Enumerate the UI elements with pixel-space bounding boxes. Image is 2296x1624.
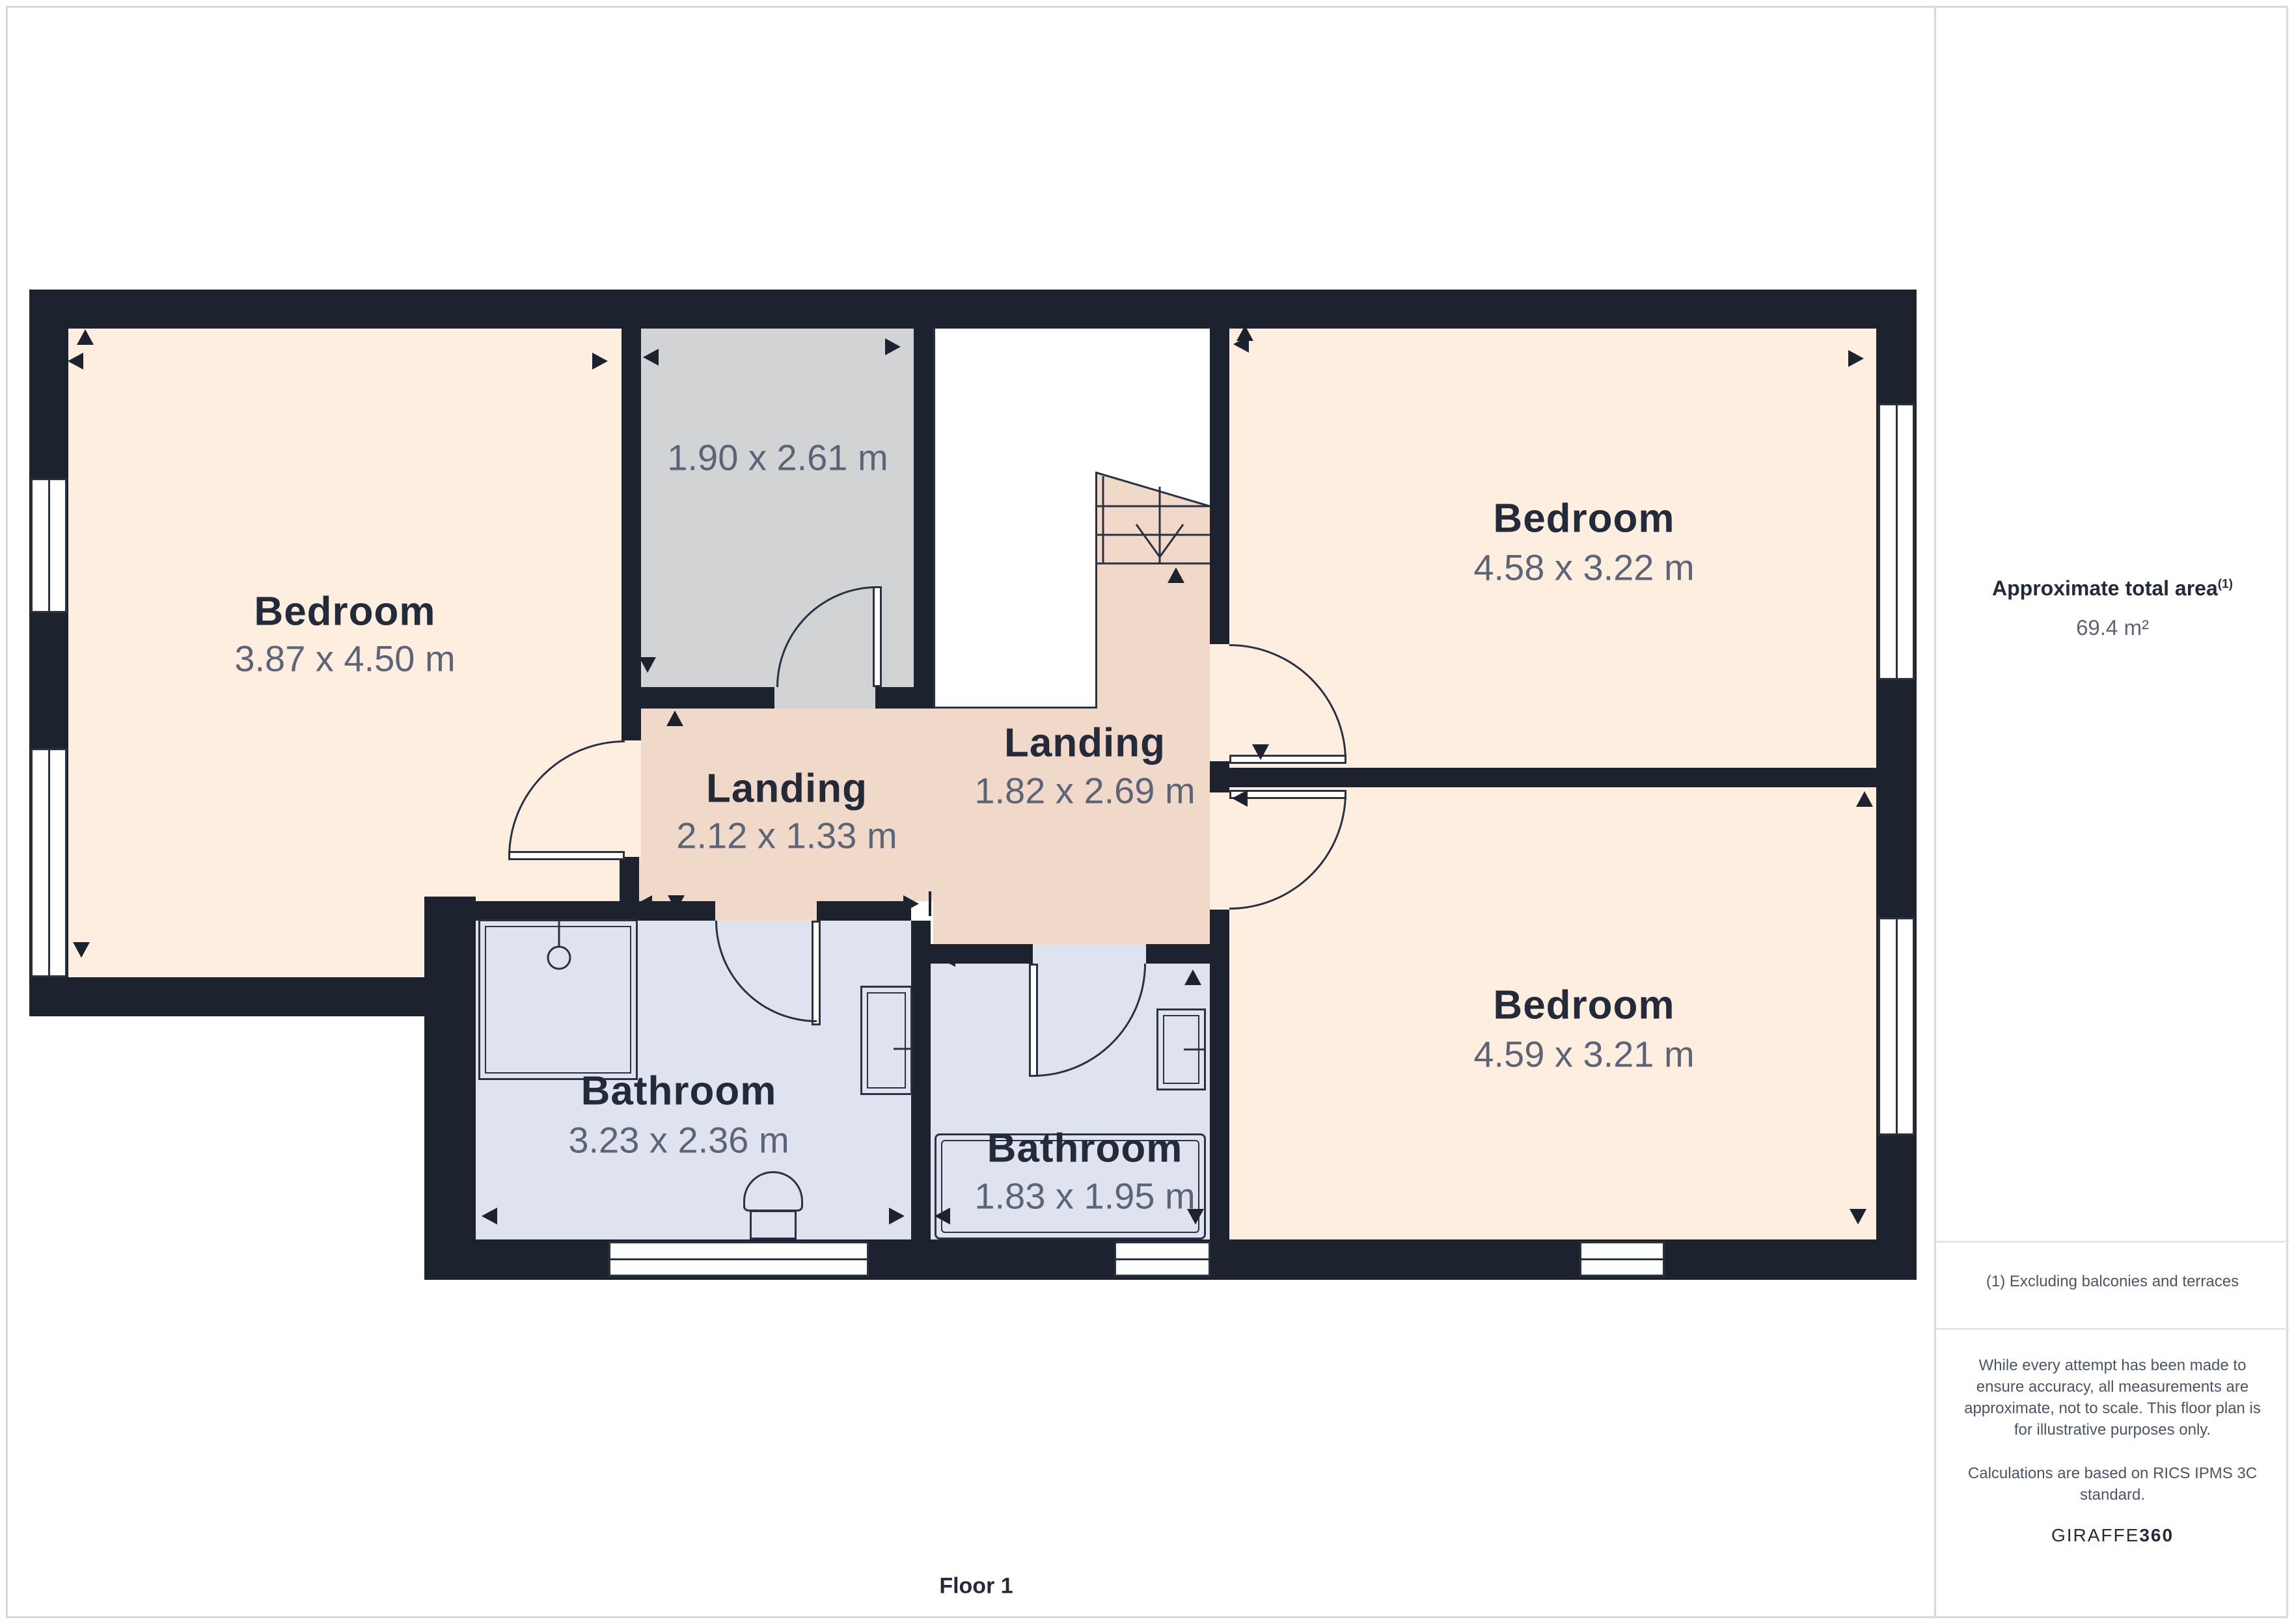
dimension-arrow (592, 353, 608, 370)
label-bedroom-top-right-dims: 4.58 x 3.22 m (1473, 547, 1694, 589)
sink-left (860, 986, 912, 1095)
dimension-arrow (885, 338, 901, 355)
logo-suffix: 360 (2139, 1525, 2174, 1545)
wall (1210, 910, 1229, 1239)
room-dimensions: 3.23 x 2.36 m (568, 1119, 789, 1161)
stairs-treads (1095, 506, 1210, 563)
dimension-arrow (73, 942, 90, 958)
label-landing-large-dims: 1.82 x 2.69 m (974, 770, 1195, 812)
wall (911, 921, 931, 1239)
wall (817, 901, 911, 921)
dimension-arrow (643, 349, 659, 366)
room-name: Landing (706, 766, 868, 812)
sidebar-standard-note: Calculations are based on RICS IPMS 3C s… (1960, 1463, 2265, 1506)
wall (1210, 329, 1229, 644)
label-landing-large: Landing (1004, 720, 1166, 766)
label-bathroom-left-dims: 3.23 x 2.36 m (568, 1119, 789, 1161)
dimension-arrow (1856, 791, 1873, 807)
label-bedroom-left: Bedroom (254, 589, 435, 635)
dimension-arrow (77, 329, 94, 345)
dimension-arrow (1232, 790, 1248, 807)
wall (875, 687, 914, 709)
dimension-arrow (1252, 744, 1269, 760)
wall (914, 329, 933, 709)
dimension-arrow (668, 895, 685, 911)
wall (29, 290, 1917, 329)
label-bedroom-left-dims: 3.87 x 4.50 m (234, 638, 455, 680)
giraffe360-logo: GIRAFFE360 (2051, 1525, 2174, 1546)
room-name: Bedroom (254, 589, 435, 635)
room-dimensions: 1.82 x 2.69 m (974, 770, 1195, 812)
dimension-arrow (636, 895, 652, 912)
room-dimensions: 4.59 x 3.21 m (1473, 1033, 1694, 1076)
sidebar-footnote: (1) Excluding balconies and terraces (1986, 1273, 2239, 1291)
area-title-superscript: (1) (2218, 577, 2233, 591)
floor-label: Floor 1 (939, 1574, 1013, 1599)
linework (0, 0, 2296, 1624)
room-name: Bathroom (987, 1126, 1183, 1172)
dimension-arrow (1233, 336, 1249, 353)
dimension-arrow (903, 895, 919, 912)
stairs-left-edge (1097, 472, 1104, 709)
sidebar-disclaimer: While every attempt has been made to ens… (1960, 1355, 2265, 1441)
dimension-arrow (889, 1208, 905, 1225)
label-bedroom-top-right: Bedroom (1493, 496, 1674, 542)
room-dimensions: 1.90 x 2.61 m (667, 437, 888, 479)
window-bottom-bathroom-left (608, 1241, 869, 1277)
room-name: Landing (1004, 720, 1166, 766)
label-landing-small: Landing (706, 766, 868, 812)
void-outline (933, 329, 1095, 709)
window-left-2 (31, 748, 67, 977)
wall (1229, 768, 1876, 787)
wall (29, 977, 424, 1016)
window-left-1 (31, 478, 67, 613)
wall (622, 687, 774, 709)
dimension-arrow (1168, 567, 1184, 583)
window-right-bottom (1878, 917, 1915, 1135)
label-landing-small-dims: 2.12 x 1.33 m (676, 815, 897, 857)
dimension-stop (929, 891, 931, 916)
shower-tray (478, 919, 638, 1080)
window-right-top (1878, 403, 1915, 680)
window-bottom-bathroom-right (1114, 1241, 1210, 1277)
dimension-arrow (482, 1208, 497, 1225)
room-dimensions: 3.87 x 4.50 m (234, 638, 455, 680)
dimension-arrow (1184, 969, 1201, 985)
room-dimensions: 4.58 x 3.22 m (1473, 547, 1694, 589)
room-name: Bedroom (1493, 496, 1674, 542)
dimension-arrow (940, 950, 955, 967)
label-bathroom-left: Bathroom (581, 1068, 777, 1115)
room-name: Bathroom (581, 1068, 777, 1115)
dimension-arrow (1848, 350, 1864, 367)
wall (1146, 944, 1210, 964)
room-dimensions: 1.83 x 1.95 m (974, 1175, 1195, 1217)
window-bottom-bedroom (1579, 1241, 1665, 1277)
sidebar-area-value: 69.4 m² (2076, 616, 2149, 640)
sink-right (1156, 1008, 1206, 1090)
toilet-cistern (750, 1210, 797, 1239)
dimension-arrow (639, 657, 656, 673)
label-bedroom-bottom-right-dims: 4.59 x 3.21 m (1473, 1033, 1694, 1076)
label-bathroom-right: Bathroom (987, 1126, 1183, 1172)
dimension-arrow (666, 710, 683, 726)
room-name: Bedroom (1493, 982, 1674, 1029)
floorplan-page: Bedroom 3.87 x 4.50 m 1.90 x 2.61 m Land… (0, 0, 2296, 1624)
logo-prefix: GIRAFFE (2051, 1525, 2139, 1545)
dimension-arrow (1850, 1209, 1866, 1225)
label-bathroom-right-dims: 1.83 x 1.95 m (974, 1175, 1195, 1217)
wall (424, 897, 476, 1280)
sidebar-area-title: Approximate total area(1) (1992, 576, 2233, 601)
label-store-gray-dims: 1.90 x 2.61 m (667, 437, 888, 479)
room-dimensions: 2.12 x 1.33 m (676, 815, 897, 857)
dimension-arrow (935, 1208, 950, 1225)
wall (622, 329, 641, 740)
label-bedroom-bottom-right: Bedroom (1493, 982, 1674, 1029)
dimension-arrow (68, 353, 83, 370)
wall (1210, 761, 1229, 792)
area-title-text: Approximate total area (1992, 576, 2218, 600)
